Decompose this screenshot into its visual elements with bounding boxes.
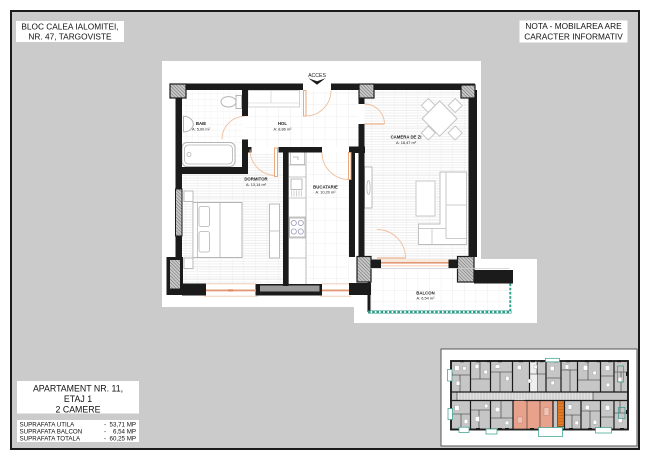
svg-text:-: -	[104, 436, 106, 443]
svg-text:NR. 47, TARGOVISTE: NR. 47, TARGOVISTE	[28, 32, 112, 42]
svg-text:APARTAMENT NR. 11,: APARTAMENT NR. 11,	[33, 384, 123, 394]
svg-text:A: 5,00 m²: A: 5,00 m²	[192, 127, 211, 132]
svg-text:60,25 MP: 60,25 MP	[110, 436, 136, 443]
svg-text:HOL: HOL	[278, 121, 287, 126]
svg-text:-: -	[104, 429, 106, 436]
svg-text:A: 10,20 m²: A: 10,20 m²	[315, 190, 336, 195]
svg-text:SUPRAFATA BALCON: SUPRAFATA BALCON	[20, 429, 83, 436]
svg-text:6,54 MP: 6,54 MP	[113, 429, 136, 436]
svg-text:A: 18,47 m²: A: 18,47 m²	[396, 140, 417, 145]
svg-text:ACCES: ACCES	[308, 73, 326, 79]
svg-text:ETAJ 1: ETAJ 1	[64, 394, 92, 404]
svg-text:53,71 MP: 53,71 MP	[110, 422, 136, 429]
svg-text:-: -	[104, 422, 106, 429]
svg-text:SUPRAFATA UTILA: SUPRAFATA UTILA	[20, 422, 76, 429]
svg-text:A: 13,14 m²: A: 13,14 m²	[246, 182, 267, 187]
svg-text:DORMITOR: DORMITOR	[244, 177, 268, 182]
svg-text:BAIE: BAIE	[196, 121, 206, 126]
svg-text:A: 8,86 m²: A: 8,86 m²	[274, 127, 293, 132]
svg-text:BLOC CALEA IALOMITEI,: BLOC CALEA IALOMITEI,	[21, 22, 118, 32]
svg-text:A: 6,54 m²: A: 6,54 m²	[417, 296, 436, 301]
svg-text:NOTA - MOBILAREA ARE: NOTA - MOBILAREA ARE	[525, 21, 622, 31]
svg-text:CAMERA DE ZI: CAMERA DE ZI	[391, 135, 422, 140]
svg-text:2 CAMERE: 2 CAMERE	[56, 405, 101, 415]
svg-text:SUPRAFATA TOTALA: SUPRAFATA TOTALA	[20, 436, 82, 443]
svg-text:CARACTER INFORMATIV: CARACTER INFORMATIV	[524, 32, 623, 42]
